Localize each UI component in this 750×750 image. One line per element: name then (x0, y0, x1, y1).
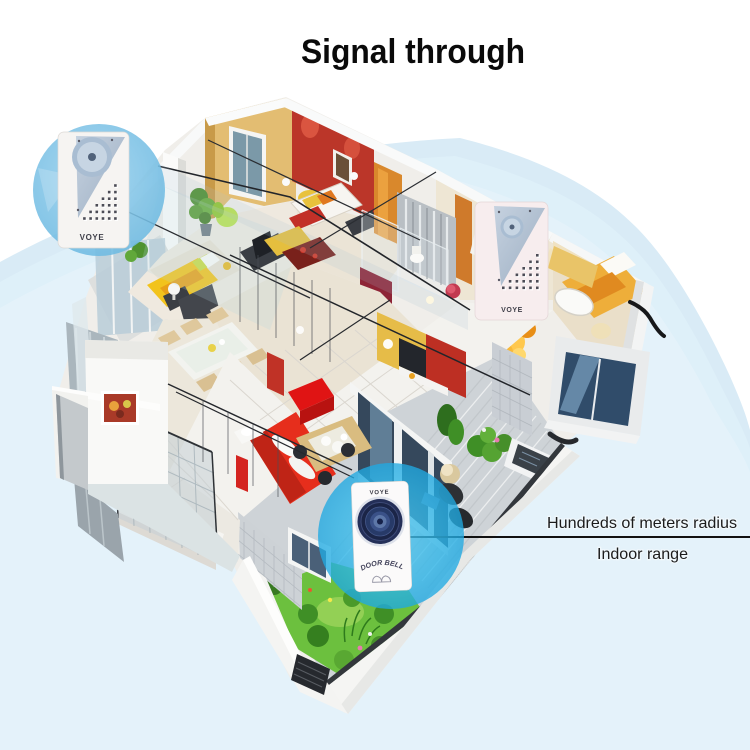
svg-text:Signal through: Signal through (301, 33, 525, 71)
svg-text:VOYE: VOYE (369, 490, 389, 497)
svg-text:VOYE: VOYE (80, 233, 105, 242)
svg-text:Hundreds of meters radius: Hundreds of meters radius (547, 515, 737, 532)
svg-text:VOYE: VOYE (501, 307, 523, 314)
svg-text:Indoor range: Indoor range (597, 546, 688, 563)
